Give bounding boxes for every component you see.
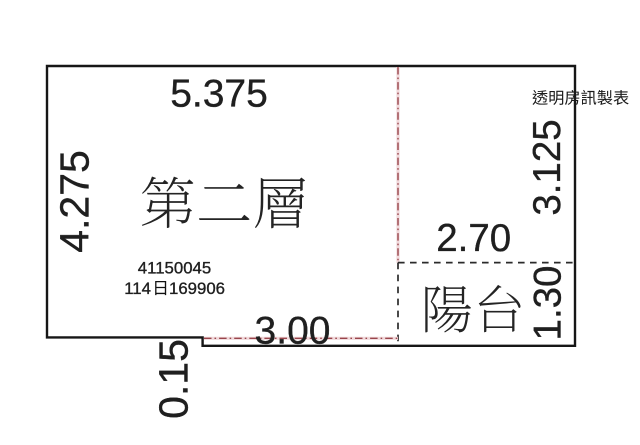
svg-text:3.125: 3.125 <box>526 119 569 215</box>
svg-text:3.00: 3.00 <box>255 310 331 353</box>
svg-text:0.15: 0.15 <box>151 339 197 419</box>
svg-text:41150045: 41150045 <box>138 259 211 278</box>
svg-text:5.375: 5.375 <box>170 73 268 116</box>
svg-text:2.70: 2.70 <box>436 217 511 260</box>
svg-text:114: 114 <box>124 279 151 298</box>
svg-text:1.30: 1.30 <box>527 266 570 341</box>
svg-text:169906: 169906 <box>169 279 225 298</box>
svg-text:4.275: 4.275 <box>52 150 98 253</box>
